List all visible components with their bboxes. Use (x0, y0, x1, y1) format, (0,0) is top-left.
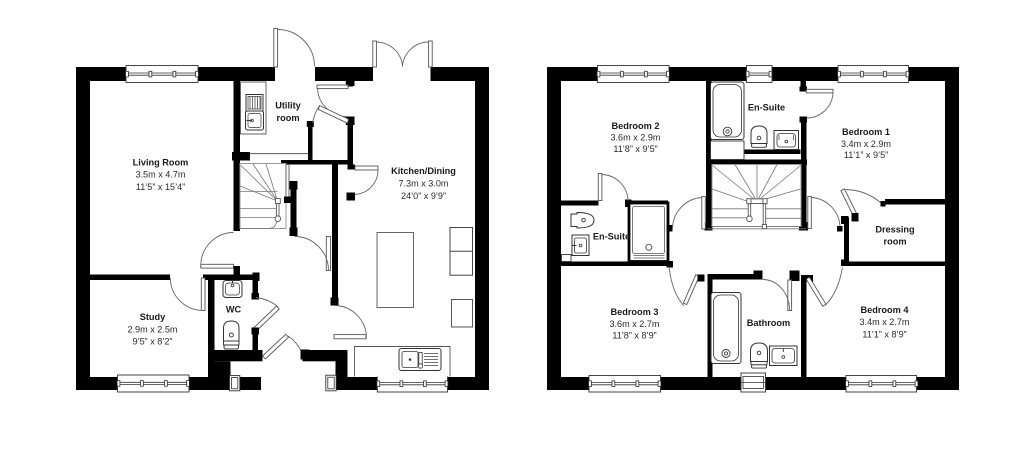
svg-text:3.6m x 2.7m: 3.6m x 2.7m (609, 319, 659, 329)
svg-text:Bedroom 2: Bedroom 2 (612, 121, 660, 131)
svg-text:En-Suite: En-Suite (593, 232, 630, 242)
svg-text:Bedroom 4: Bedroom 4 (861, 305, 910, 315)
svg-text:room: room (884, 237, 907, 247)
svg-text:11’1” x 8’9”: 11’1” x 8’9” (862, 330, 906, 340)
svg-text:Bedroom 1: Bedroom 1 (842, 127, 890, 137)
svg-text:Bathroom: Bathroom (747, 318, 790, 328)
svg-text:11’8” x 8’9”: 11’8” x 8’9” (612, 331, 656, 341)
svg-text:3.4m x 2.9m: 3.4m x 2.9m (841, 139, 891, 149)
svg-text:WC: WC (226, 305, 242, 315)
svg-text:Dressing: Dressing (875, 225, 914, 235)
svg-text:7.3m x 3.0m: 7.3m x 3.0m (398, 179, 448, 189)
svg-text:Utility: Utility (275, 101, 301, 111)
svg-text:3.5m x 4.7m: 3.5m x 4.7m (135, 170, 185, 180)
svg-text:9’5” x 8’2”: 9’5” x 8’2” (133, 337, 173, 347)
svg-text:En-Suite: En-Suite (748, 103, 785, 113)
svg-text:2.9m x 2.5m: 2.9m x 2.5m (127, 325, 177, 335)
svg-text:3.4m x 2.7m: 3.4m x 2.7m (859, 317, 909, 327)
svg-text:3.6m x 2.9m: 3.6m x 2.9m (610, 133, 660, 143)
svg-text:Kitchen/Dining: Kitchen/Dining (391, 166, 456, 176)
svg-text:11’8” x 9’5”: 11’8” x 9’5” (613, 144, 657, 154)
svg-text:24’0” x 9’9”: 24’0” x 9’9” (401, 191, 446, 201)
svg-text:Study: Study (140, 312, 166, 322)
svg-text:11’1” x 9’5”: 11’1” x 9’5” (844, 150, 888, 160)
svg-text:Living Room: Living Room (133, 158, 189, 168)
svg-text:Bedroom 3: Bedroom 3 (611, 307, 659, 317)
svg-text:room: room (277, 113, 300, 123)
svg-text:11’5” x 15’4”: 11’5” x 15’4” (136, 182, 185, 192)
